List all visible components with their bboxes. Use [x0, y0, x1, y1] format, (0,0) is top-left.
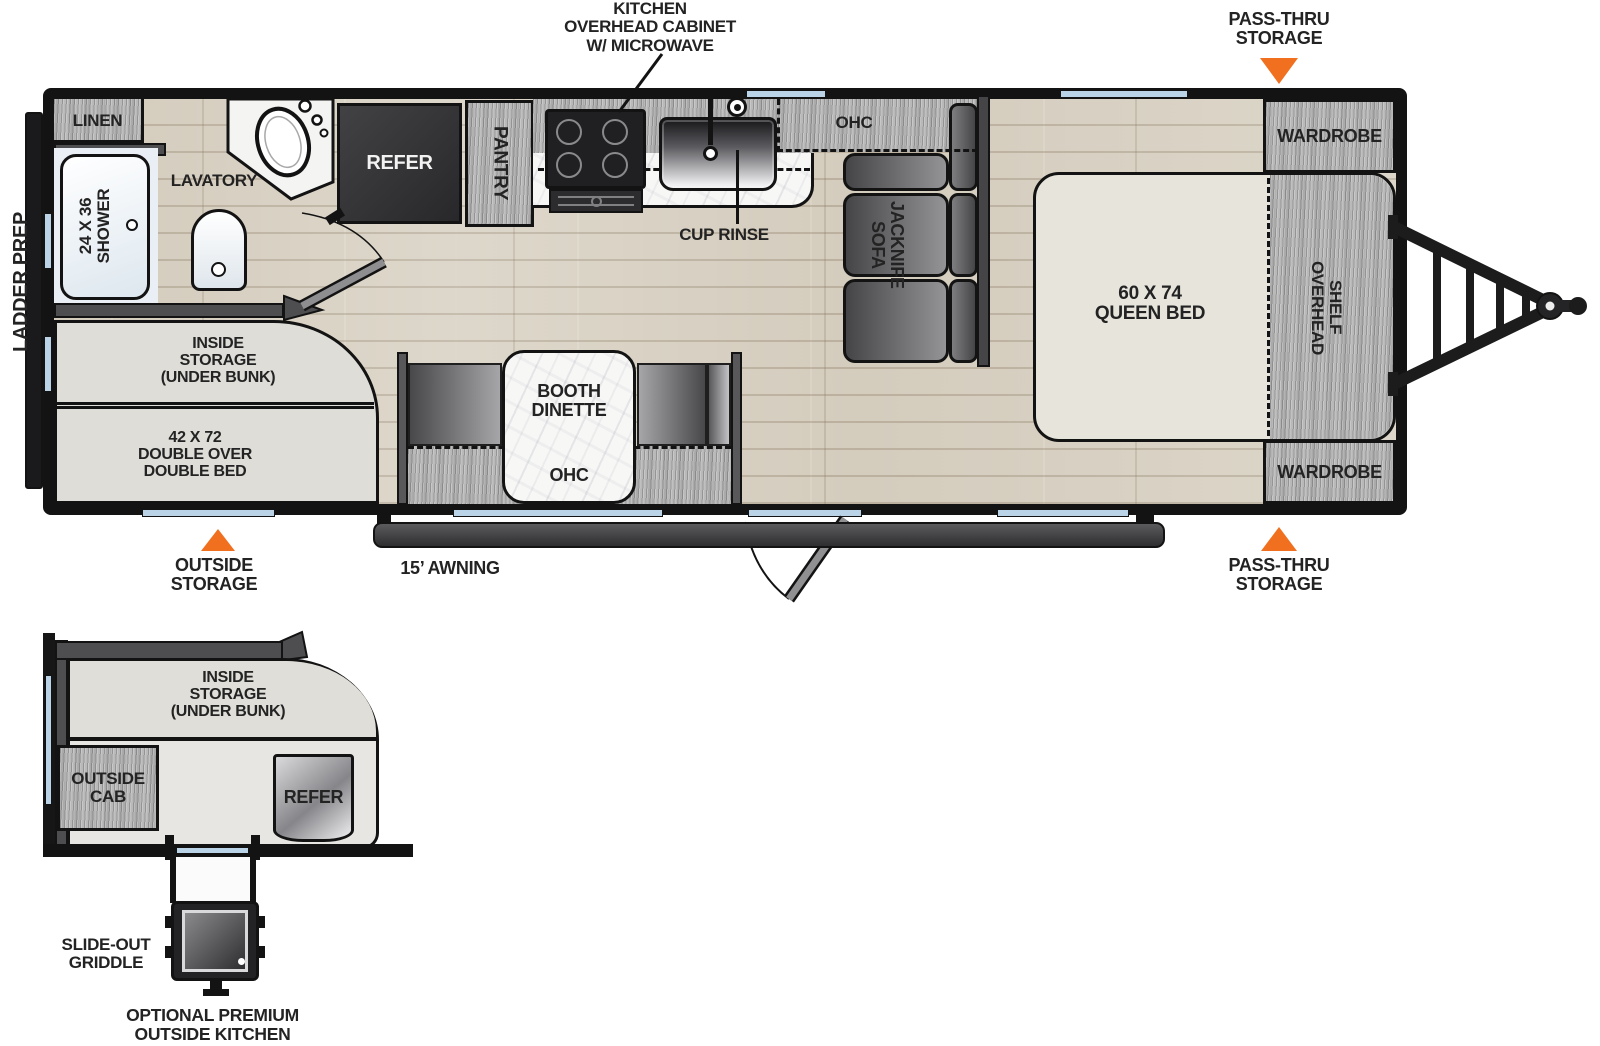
griddle-knob — [258, 946, 265, 958]
linen-cabinet: LINEN — [54, 99, 144, 143]
window — [1060, 90, 1188, 98]
floorplan-canvas: LADDER PREP LINEN 24 X 36 SHOWER LAVATOR… — [0, 0, 1600, 1046]
oven — [549, 189, 643, 213]
pantry: PANTRY — [465, 100, 534, 227]
kitchen-cabinet-callout: KITCHEN OVERHEAD CABINET W/ MICROWAVE — [535, 0, 765, 56]
ohc-sofa-label: OHC — [779, 114, 929, 136]
optional-inside-storage-label: INSIDE STORAGE (UNDER BUNK) — [128, 670, 328, 724]
faucet — [708, 95, 713, 145]
toilet — [191, 209, 247, 291]
griddle-plate-dot — [238, 958, 245, 965]
window — [997, 509, 1129, 517]
wardrobe-bottom: WARDROBE — [1263, 440, 1396, 504]
optional-window — [45, 675, 52, 805]
cup-rinse-fixture-center — [734, 104, 741, 111]
toilet-drain — [211, 262, 226, 277]
wardrobe-top-label: WARDROBE — [1266, 102, 1393, 170]
dinette-bench-left — [408, 363, 502, 446]
cup-rinse-leader-line — [736, 150, 739, 224]
bathroom-wall — [54, 303, 284, 318]
optional-refer-label: REFER — [276, 757, 351, 837]
window — [746, 90, 826, 98]
slide-out-griddle-label: SLIDE-OUT GRIDDLE — [40, 936, 172, 972]
griddle-foot-base — [203, 989, 229, 996]
lavatory-label: LAVATORY — [168, 172, 260, 190]
outside-storage-arrow — [201, 529, 235, 551]
pantry-label: PANTRY — [489, 126, 509, 200]
sofa-backrest — [949, 193, 978, 277]
linen-label: LINEN — [54, 99, 141, 143]
griddle-foot — [210, 981, 222, 989]
hitch-ball — [1569, 297, 1587, 315]
booth-dinette-label: BOOTH DINETTE — [512, 382, 626, 422]
stove-burner — [602, 152, 628, 178]
window — [453, 509, 663, 517]
ohc-dashed-edge — [777, 149, 978, 152]
oven-dial — [591, 196, 602, 207]
awning-label: 15’ AWNING — [385, 559, 515, 579]
faucet-base — [703, 146, 718, 161]
hitch-coupler — [1537, 293, 1563, 319]
kitchen-sink — [659, 117, 777, 191]
hitch-rail — [1394, 227, 1549, 303]
stove-burner — [602, 119, 628, 145]
pass-thru-bottom-label: PASS-THRU STORAGE — [1195, 556, 1363, 596]
hitch-rail — [1394, 309, 1549, 384]
dinette-post — [731, 352, 742, 505]
hitch-stub — [1560, 300, 1572, 312]
jacknife-sofa-label: JACKNIFE SOFA — [858, 170, 906, 320]
ladder-prep-label: LADDER PREP — [11, 157, 35, 407]
refrigerator: REFER — [337, 103, 462, 224]
wardrobe-top: WARDROBE — [1263, 99, 1396, 173]
window — [44, 213, 52, 269]
bunk-divider — [56, 402, 374, 409]
hitch-coupler-center — [1546, 302, 1555, 311]
stove-burner — [556, 119, 582, 145]
shower-label: 24 X 36 SHOWER — [77, 151, 115, 301]
queen-bed-label: 60 X 74 QUEEN BED — [1060, 284, 1240, 328]
optional-kitchen-caption: OPTIONAL PREMIUM OUTSIDE KITCHEN — [105, 1006, 320, 1046]
pass-thru-top-label: PASS-THRU STORAGE — [1195, 10, 1363, 50]
inside-storage-label: INSIDE STORAGE (UNDER BUNK) — [118, 336, 318, 390]
optional-refer: REFER — [273, 754, 354, 842]
ohc-dinette-label: OHC — [537, 466, 601, 488]
dinette-bench-right — [637, 363, 707, 446]
pass-thru-top-arrow — [1260, 58, 1298, 84]
dinette-bench-end — [707, 363, 731, 446]
refer-label: REFER — [340, 106, 459, 221]
shower-drain — [126, 219, 138, 231]
window — [142, 509, 275, 517]
dinette-post — [397, 352, 408, 505]
griddle-hatch-window — [176, 847, 249, 854]
jacknife-line2: SOFA — [868, 170, 887, 320]
double-bed-label: 42 X 72 DOUBLE OVER DOUBLE BED — [95, 430, 295, 484]
jacknife-line1: JACKNIFE — [887, 170, 906, 320]
overhead-shelf-label: OVERHEAD SHELF — [1308, 225, 1356, 390]
window — [748, 509, 862, 517]
sofa-backrest — [949, 103, 978, 191]
window — [44, 336, 52, 392]
griddle-rails — [170, 857, 256, 903]
wardrobe-bottom-label: WARDROBE — [1266, 443, 1393, 501]
shelf-line1: OVERHEAD — [1308, 225, 1326, 390]
sofa-backrest — [949, 279, 978, 363]
griddle-knob — [258, 916, 265, 928]
outside-cab-label: OUTSIDE CAB — [60, 770, 156, 806]
bed-dashed-divider — [1267, 178, 1270, 436]
outside-cab: OUTSIDE CAB — [57, 745, 159, 831]
optional-divider — [70, 737, 376, 741]
outside-storage-label: OUTSIDE STORAGE — [134, 556, 294, 596]
cup-rinse-label: CUP RINSE — [672, 226, 776, 244]
sofa-partition-wall — [977, 95, 990, 367]
awning-bar — [373, 522, 1165, 548]
stove-burner — [556, 152, 582, 178]
griddle-knob — [165, 916, 172, 928]
shelf-line2: SHELF — [1326, 225, 1344, 390]
pass-thru-bottom-arrow — [1261, 527, 1297, 551]
